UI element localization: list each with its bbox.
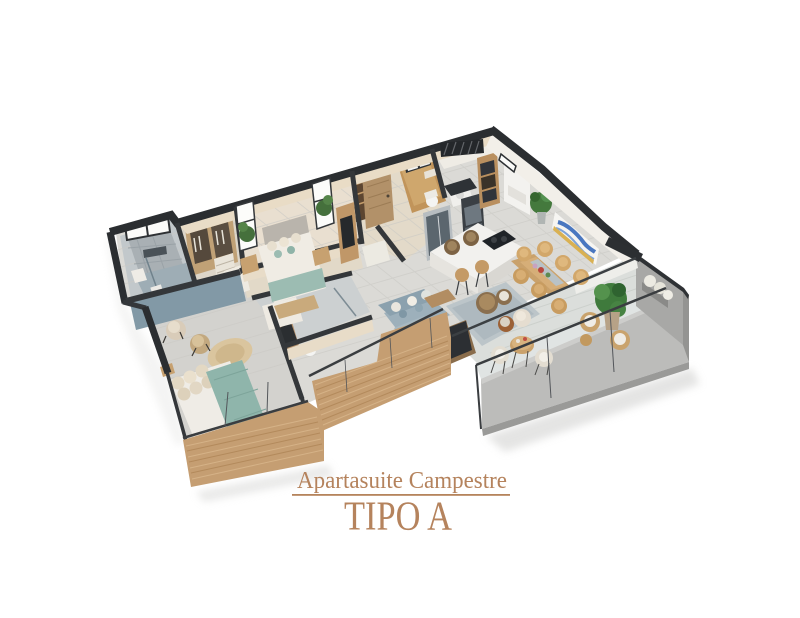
svg-text:TIPO A: TIPO A (344, 493, 452, 539)
svg-text:Apartasuite Campestre: Apartasuite Campestre (297, 468, 507, 494)
